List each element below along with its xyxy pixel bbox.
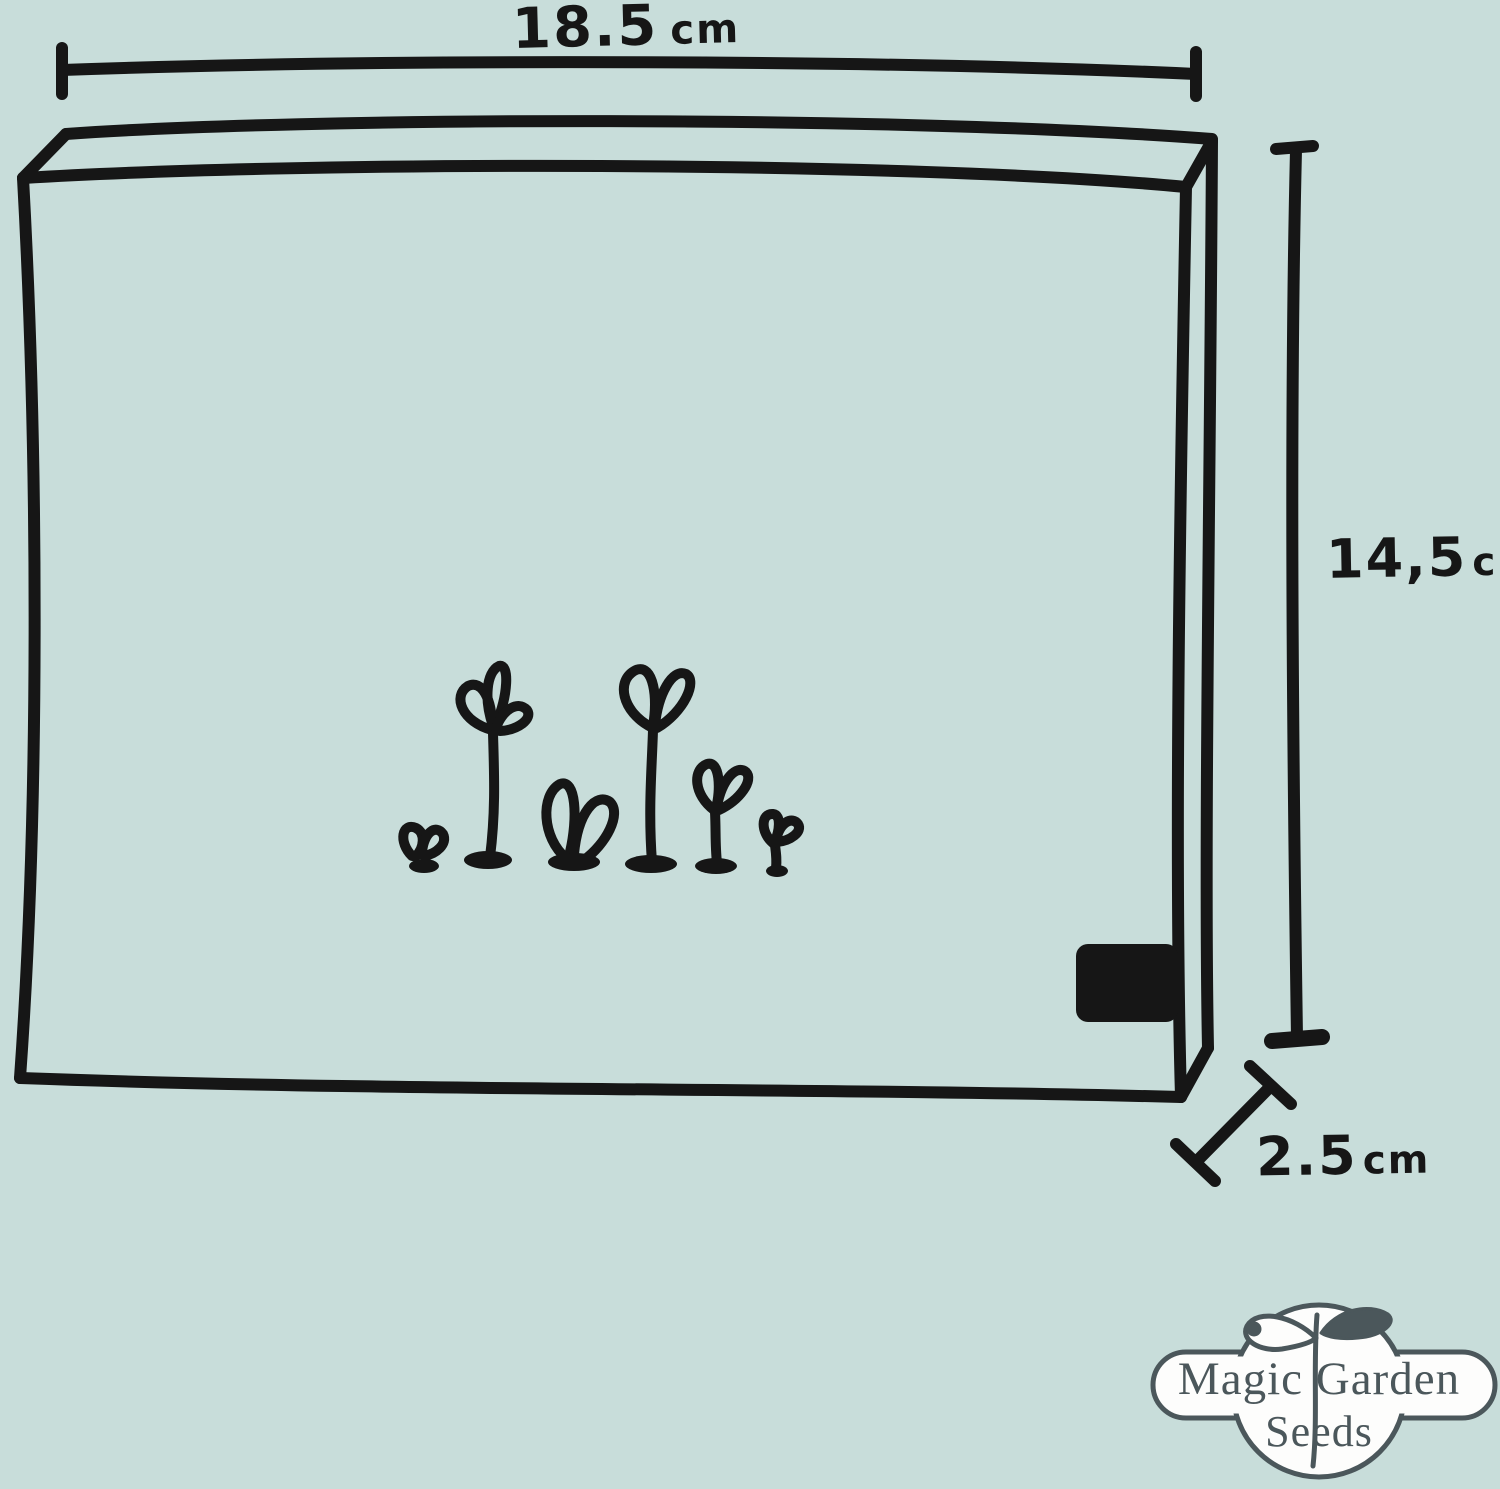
sprout-4-leaf-left	[624, 669, 655, 727]
width-unit: cm	[670, 5, 741, 54]
tray-label-patch	[1076, 944, 1178, 1022]
seedling-sprouts-icon	[403, 666, 799, 877]
sprout-2-stem	[490, 733, 494, 857]
box-back-right-edge	[1207, 140, 1212, 1048]
logo-text-seeds: Seeds	[1265, 1406, 1373, 1457]
sprout-4-stem	[650, 730, 653, 862]
height-cap-bottom	[1272, 1037, 1322, 1041]
height-dimension-label: 14,5cm	[1325, 524, 1500, 591]
height-line	[1292, 150, 1297, 1038]
logo-sprout-leaf-left-tip	[1248, 1323, 1260, 1335]
seed-tray-dimension-diagram: 18.5cm 14,5cm 2.5cm Magic Garden Seeds	[0, 0, 1500, 1489]
sprout-4-base	[625, 855, 677, 873]
sprout-5-base	[695, 858, 737, 874]
height-dimension-line	[1272, 146, 1322, 1041]
width-line	[62, 62, 1196, 74]
sprout-2-leaf-right	[496, 706, 528, 731]
sprout-2-base	[464, 851, 512, 869]
depth-dimension-label: 2.5cm	[1255, 1122, 1430, 1188]
sprout-4-leaf-right	[655, 673, 690, 728]
height-value: 14,5	[1325, 525, 1467, 590]
box-back-top-edge	[66, 121, 1212, 139]
box-bottom-edge	[20, 1078, 1181, 1097]
sprout-6-base	[766, 865, 788, 877]
sprout-3-base	[548, 853, 600, 871]
sprout-1-leaf-right	[422, 830, 444, 856]
sprout-6-stem	[775, 845, 776, 868]
sprout-1-base	[409, 859, 439, 873]
depth-value: 2.5	[1255, 1124, 1358, 1189]
hand-drawn-diagram	[0, 0, 1500, 1489]
logo-text-magic-garden: Magic Garden	[1178, 1352, 1460, 1406]
height-unit: cm	[1472, 539, 1500, 585]
box-front-top-edge	[23, 166, 1186, 187]
sprout-6-leaf-right	[776, 821, 799, 842]
width-dimension-label: 18.5cm	[511, 0, 741, 62]
depth-unit: cm	[1362, 1137, 1430, 1183]
sprout-5-stem	[715, 812, 717, 863]
seed-tray-box	[20, 121, 1212, 1097]
box-left-edge	[20, 178, 35, 1078]
sprout-3-leaf-right	[574, 799, 614, 860]
width-value: 18.5	[511, 0, 659, 62]
box-front-right-edge	[1178, 187, 1186, 1097]
